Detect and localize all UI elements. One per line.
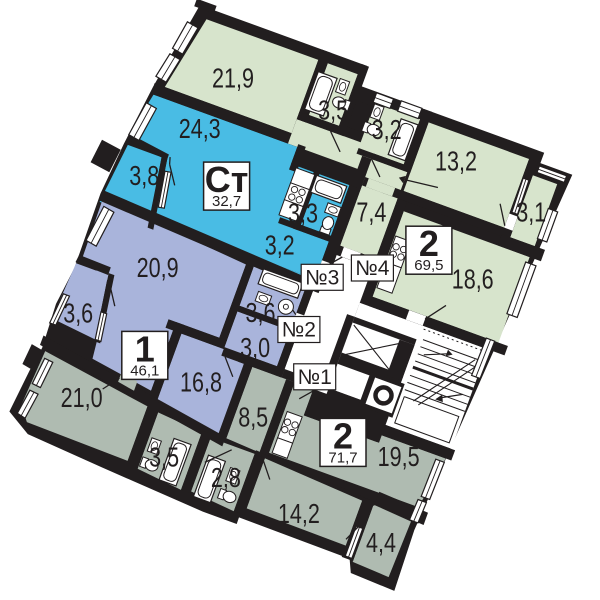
svg-text:№3: №3: [305, 266, 339, 289]
svg-text:13,2: 13,2: [435, 146, 477, 177]
svg-text:3,6: 3,6: [246, 297, 276, 328]
svg-text:3,2: 3,2: [265, 229, 295, 260]
svg-text:14,2: 14,2: [278, 498, 320, 529]
svg-text:3,2: 3,2: [372, 114, 402, 145]
svg-text:3,8: 3,8: [129, 160, 159, 191]
svg-text:№4: №4: [355, 257, 390, 280]
svg-text:46,1: 46,1: [130, 362, 159, 379]
svg-text:2,8: 2,8: [211, 462, 241, 493]
svg-text:69,5: 69,5: [414, 257, 443, 274]
svg-text:71,7: 71,7: [328, 449, 357, 466]
svg-text:8,5: 8,5: [238, 402, 268, 433]
svg-text:16,8: 16,8: [180, 367, 222, 398]
svg-text:3,6: 3,6: [63, 298, 93, 329]
svg-text:21,9: 21,9: [212, 62, 254, 93]
svg-text:20,9: 20,9: [137, 252, 179, 283]
svg-text:21,0: 21,0: [61, 382, 103, 413]
svg-text:№2: №2: [282, 319, 316, 342]
svg-text:3,3: 3,3: [288, 197, 318, 228]
svg-text:3,5: 3,5: [149, 442, 179, 473]
svg-text:3,1: 3,1: [516, 196, 546, 227]
svg-text:№1: №1: [298, 366, 332, 389]
svg-text:4,4: 4,4: [366, 527, 396, 558]
svg-text:32,7: 32,7: [212, 193, 241, 210]
svg-text:3,5: 3,5: [318, 95, 348, 126]
svg-text:3,0: 3,0: [240, 332, 270, 363]
svg-text:18,6: 18,6: [452, 263, 494, 294]
svg-text:7,4: 7,4: [356, 197, 386, 228]
svg-text:19,5: 19,5: [378, 441, 420, 472]
svg-text:24,3: 24,3: [179, 113, 221, 144]
